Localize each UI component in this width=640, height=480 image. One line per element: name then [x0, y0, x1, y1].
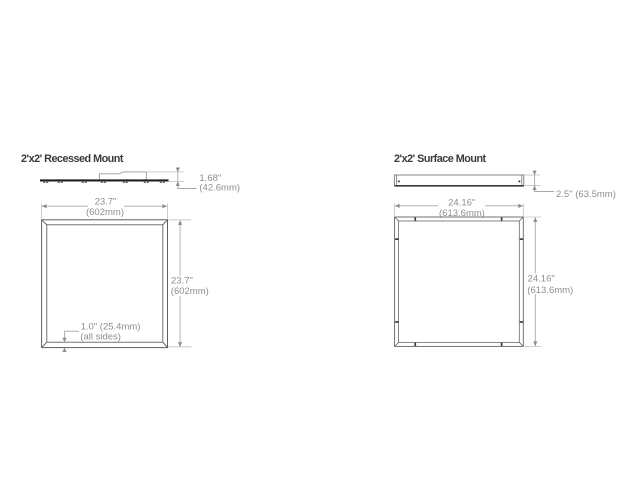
svg-text:(613.6mm): (613.6mm) — [439, 208, 485, 219]
svg-text:(42.6mm): (42.6mm) — [199, 182, 240, 193]
svg-text:2.5" (63.5mm): 2.5" (63.5mm) — [556, 189, 616, 200]
svg-text:(602mm): (602mm) — [171, 286, 209, 297]
svg-text:2'x2' Surface Mount: 2'x2' Surface Mount — [394, 153, 487, 165]
svg-text:2'x2' Recessed Mount: 2'x2' Recessed Mount — [21, 153, 124, 165]
svg-text:(613.6mm): (613.6mm) — [527, 285, 573, 296]
svg-text:(602mm): (602mm) — [86, 207, 124, 218]
svg-text:24.16": 24.16" — [448, 197, 475, 208]
svg-text:24.16": 24.16" — [528, 274, 555, 285]
svg-text:(all sides): (all sides) — [80, 331, 121, 342]
